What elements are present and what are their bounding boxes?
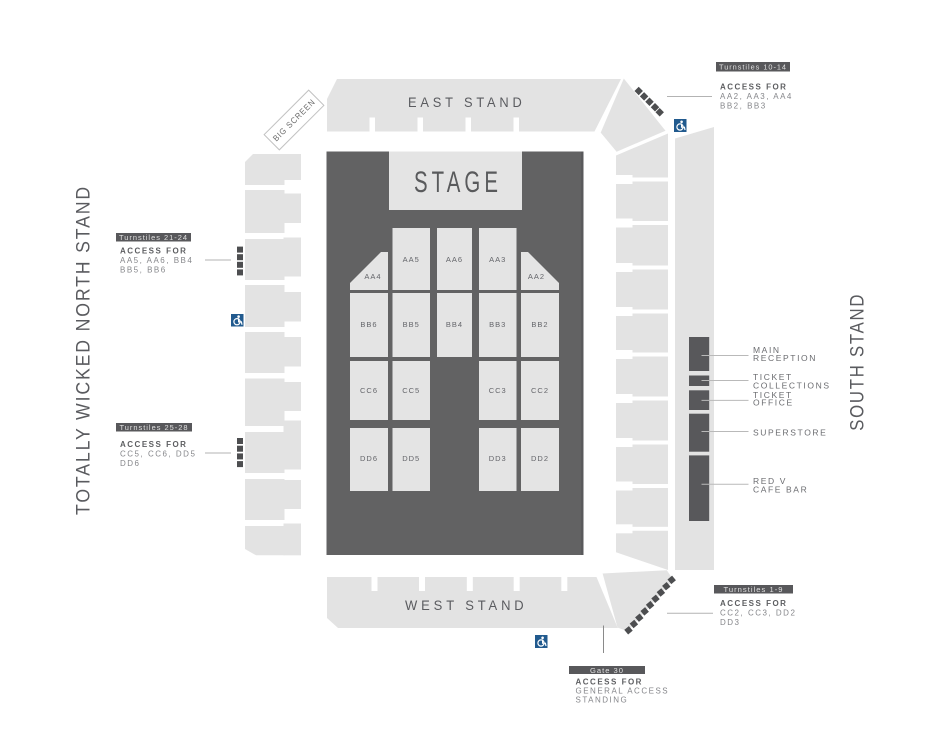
- svg-text:CC2, CC3, DD2: CC2, CC3, DD2: [720, 609, 796, 618]
- svg-text:DD6: DD6: [120, 459, 141, 468]
- svg-text:BB3: BB3: [489, 320, 506, 329]
- svg-text:WEST STAND: WEST STAND: [405, 598, 528, 613]
- svg-text:RECEPTION: RECEPTION: [753, 353, 817, 363]
- svg-text:CC5, CC6, DD5: CC5, CC6, DD5: [120, 449, 196, 458]
- svg-text:EAST STAND: EAST STAND: [408, 95, 526, 110]
- svg-text:DD5: DD5: [402, 454, 420, 463]
- svg-text:ACCESS FOR: ACCESS FOR: [120, 440, 187, 449]
- svg-text:CC6: CC6: [360, 386, 378, 395]
- svg-text:AA4: AA4: [364, 272, 381, 281]
- svg-text:ACCESS FOR: ACCESS FOR: [576, 678, 643, 687]
- svg-text:AA2: AA2: [528, 272, 545, 281]
- svg-text:DD3: DD3: [720, 618, 741, 627]
- svg-text:CC5: CC5: [402, 386, 420, 395]
- svg-text:AA5, AA6, BB4: AA5, AA6, BB4: [120, 256, 193, 265]
- svg-text:BB4: BB4: [446, 320, 463, 329]
- svg-text:Gate 30: Gate 30: [590, 666, 624, 675]
- svg-text:ACCESS FOR: ACCESS FOR: [120, 247, 187, 256]
- svg-text:BB2, BB3: BB2, BB3: [720, 102, 767, 111]
- svg-text:STANDING: STANDING: [576, 696, 629, 705]
- svg-text:STAGE: STAGE: [414, 166, 502, 199]
- svg-text:OFFICE: OFFICE: [753, 398, 794, 408]
- svg-text:Turnstiles 1-9: Turnstiles 1-9: [724, 585, 784, 594]
- svg-text:AA6: AA6: [446, 255, 463, 264]
- svg-text:Turnstiles 10-14: Turnstiles 10-14: [719, 63, 787, 72]
- svg-text:ACCESS FOR: ACCESS FOR: [720, 599, 787, 608]
- svg-text:CC2: CC2: [531, 386, 549, 395]
- svg-text:Turnstiles 25-28: Turnstiles 25-28: [120, 423, 189, 432]
- svg-text:CAFE BAR: CAFE BAR: [753, 485, 808, 495]
- svg-text:BB5, BB6: BB5, BB6: [120, 266, 167, 275]
- svg-text:BIG SCREEN: BIG SCREEN: [271, 97, 318, 144]
- svg-text:CC3: CC3: [489, 386, 507, 395]
- svg-text:AA5: AA5: [403, 255, 420, 264]
- svg-text:TOTALLY WICKED NORTH STAND: TOTALLY WICKED NORTH STAND: [74, 185, 95, 515]
- svg-text:DD3: DD3: [489, 454, 507, 463]
- svg-text:ACCESS FOR: ACCESS FOR: [720, 83, 787, 92]
- svg-text:BB2: BB2: [531, 320, 548, 329]
- svg-text:Turnstiles 21-24: Turnstiles 21-24: [119, 233, 188, 242]
- svg-text:DD2: DD2: [531, 454, 549, 463]
- svg-text:SOUTH STAND: SOUTH STAND: [848, 293, 869, 431]
- svg-text:AA2, AA3, AA4: AA2, AA3, AA4: [720, 92, 793, 101]
- svg-text:DD6: DD6: [360, 454, 378, 463]
- svg-text:AA3: AA3: [489, 255, 506, 264]
- svg-text:BB5: BB5: [403, 320, 420, 329]
- svg-text:GENERAL ACCESS: GENERAL ACCESS: [576, 687, 670, 696]
- svg-text:BB6: BB6: [360, 320, 377, 329]
- svg-text:SUPERSTORE: SUPERSTORE: [753, 428, 827, 438]
